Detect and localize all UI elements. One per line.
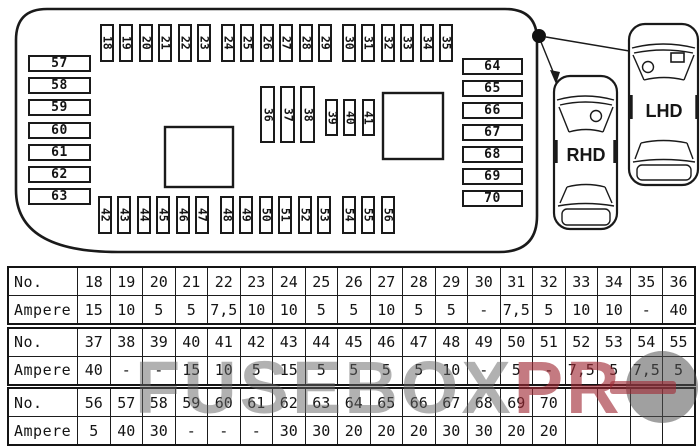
ampere-cell: 5: [663, 356, 696, 385]
fuse-no-cell: 20: [143, 267, 176, 296]
fuse-number-label: 56: [382, 208, 394, 222]
fuse-no-cell: [565, 388, 598, 417]
fuse-number-label: 27: [280, 36, 292, 50]
fuse-no-cell: 50: [500, 328, 533, 357]
fuse-number-label: 19: [121, 36, 133, 50]
ampere-cell: -: [468, 356, 501, 385]
ampere-table-section-1: No.1819202122232425262728293031323334353…: [7, 266, 696, 325]
fuse-no-cell: 33: [565, 267, 598, 296]
fuse-no-cell: 65: [370, 388, 403, 417]
fuse-35: 35: [439, 24, 453, 62]
fuse-no-cell: 24: [273, 267, 306, 296]
fuse-number-label: 42: [99, 208, 111, 222]
fuse-number-label: 58: [51, 79, 68, 92]
fuse-number-label: 18: [101, 36, 113, 50]
fuse-51: 51: [278, 196, 292, 234]
ampere-cell: [663, 417, 696, 446]
fuse-number-label: 26: [261, 36, 273, 50]
ampere-cell: -: [533, 356, 566, 385]
fuse-no-cell: 41: [208, 328, 241, 357]
fuse-no-row-header: No.: [8, 328, 78, 357]
fuse-number-label: 32: [382, 36, 394, 50]
fuse-62: 62: [28, 166, 91, 183]
fuse-no-cell: 60: [208, 388, 241, 417]
ampere-cell: 10: [435, 356, 468, 385]
ampere-cell: -: [175, 417, 208, 446]
fuse-number-label: 68: [484, 148, 501, 161]
fuse-68: 68: [462, 146, 523, 163]
fuse-no-cell: 32: [533, 267, 566, 296]
fuse-66: 66: [462, 102, 523, 119]
ampere-cell: 10: [273, 296, 306, 325]
fuse-25: 25: [240, 24, 254, 62]
fuse-32: 32: [381, 24, 395, 62]
fuse-number-label: 61: [51, 146, 68, 159]
fuse-no-cell: 62: [273, 388, 306, 417]
ampere-cell: 5: [435, 296, 468, 325]
fuse-no-cell: 66: [403, 388, 436, 417]
fuse-number-label: 34: [421, 36, 433, 50]
fuse-no-cell: 45: [338, 328, 371, 357]
fuse-number-label: 40: [344, 111, 356, 125]
fuse-no-row: No.565758596061626364656667686970: [8, 388, 695, 417]
ampere-cell: 30: [273, 417, 306, 446]
ampere-cell: 30: [435, 417, 468, 446]
fuse-no-cell: 63: [305, 388, 338, 417]
ampere-cell: 5: [403, 356, 436, 385]
ampere-cell: 10: [370, 296, 403, 325]
fuse-number-label: 45: [157, 208, 169, 222]
fuse-no-cell: 49: [468, 328, 501, 357]
fuse-number-label: 31: [363, 36, 375, 50]
fuse-number-label: 47: [196, 208, 208, 222]
ampere-cell: [565, 417, 598, 446]
ampere-cell: 20: [500, 417, 533, 446]
fuse-no-cell: [598, 388, 631, 417]
fuse-69: 69: [462, 168, 523, 185]
fuse-no-cell: 38: [110, 328, 143, 357]
fuse-number-label: 30: [343, 36, 355, 50]
fuse-67: 67: [462, 124, 523, 141]
ampere-cell: -: [143, 356, 176, 385]
fuse-no-cell: 46: [370, 328, 403, 357]
fuse-18: 18: [100, 24, 114, 62]
fuse-23: 23: [197, 24, 211, 62]
fuse-number-label: 59: [51, 101, 68, 114]
fuse-number-label: 63: [51, 190, 68, 203]
fuse-no-cell: 43: [273, 328, 306, 357]
fuse-no-cell: 19: [110, 267, 143, 296]
fuse-number-label: 39: [326, 111, 338, 125]
fuse-no-cell: [630, 388, 663, 417]
fuse-number-label: 48: [221, 208, 233, 222]
ampere-cell: 40: [110, 417, 143, 446]
fuse-no-cell: 54: [630, 328, 663, 357]
ampere-cell: 20: [403, 417, 436, 446]
fuse-number-label: 51: [279, 208, 291, 222]
fuse-no-cell: 29: [435, 267, 468, 296]
fuse-no-cell: 70: [533, 388, 566, 417]
ampere-row-header: Ampere: [8, 296, 78, 325]
fuse-no-cell: 52: [565, 328, 598, 357]
fuse-31: 31: [361, 24, 375, 62]
fuse-number-label: 44: [138, 208, 150, 222]
ampere-row-header: Ampere: [8, 417, 78, 446]
fuse-number-label: 50: [260, 208, 272, 222]
fuse-number-label: 36: [262, 108, 274, 122]
fuse-26: 26: [260, 24, 274, 62]
fuse-19: 19: [119, 24, 133, 62]
ampere-cell: 5: [533, 296, 566, 325]
fuse-no-cell: 21: [175, 267, 208, 296]
fuse-49: 49: [239, 196, 253, 234]
ampere-cell: 10: [208, 356, 241, 385]
fuse-no-row-header: No.: [8, 267, 78, 296]
ampere-cell: [598, 417, 631, 446]
fuse-number-label: 28: [300, 36, 312, 50]
ampere-cell: 5: [500, 356, 533, 385]
ampere-cell: 5: [370, 356, 403, 385]
fuse-no-cell: 34: [598, 267, 631, 296]
fuse-45: 45: [156, 196, 170, 234]
fuse-number-label: 21: [159, 36, 171, 50]
ampere-row: Ampere54030---303020202030302020: [8, 417, 695, 446]
ampere-cell: 5: [240, 356, 273, 385]
fuse-no-row: No.3738394041424344454647484950515253545…: [8, 328, 695, 357]
fuse-55: 55: [361, 196, 375, 234]
ampere-cell: 5: [305, 296, 338, 325]
fuse-no-cell: 68: [468, 388, 501, 417]
fuse-number-label: 62: [51, 168, 68, 181]
fuse-61: 61: [28, 144, 91, 161]
fuse-34: 34: [420, 24, 434, 62]
fuse-65: 65: [462, 80, 523, 97]
ampere-cell: 20: [338, 417, 371, 446]
fuse-30: 30: [342, 24, 356, 62]
fuse-number-label: 23: [198, 36, 210, 50]
ampere-cell: 5: [78, 417, 111, 446]
fuse-number-label: 41: [363, 111, 375, 125]
ampere-cell: 5: [338, 356, 371, 385]
fuse-number-label: 43: [119, 208, 131, 222]
fuse-36: 36: [260, 86, 275, 143]
fuse-number-label: 46: [177, 208, 189, 222]
fuse-22: 22: [178, 24, 192, 62]
fuse-number-label: 70: [484, 192, 501, 205]
fuse-no-cell: 59: [175, 388, 208, 417]
fuse-number-label: 25: [242, 36, 254, 50]
fuse-no-cell: 67: [435, 388, 468, 417]
fuse-63: 63: [28, 188, 91, 205]
ampere-cell: 5: [305, 356, 338, 385]
fuse-46: 46: [176, 196, 190, 234]
fuse-no-row: No.1819202122232425262728293031323334353…: [8, 267, 695, 296]
ampere-cell: 20: [370, 417, 403, 446]
fuse-64: 64: [462, 58, 523, 75]
fuse-number-label: 57: [51, 57, 68, 70]
ampere-table-section-2: No.3738394041424344454647484950515253545…: [7, 327, 696, 386]
ampere-row: Ampere40--1510515555510-5-7,557,55: [8, 356, 695, 385]
fuse-no-cell: 44: [305, 328, 338, 357]
fuse-24: 24: [221, 24, 235, 62]
fuse-no-cell: 37: [78, 328, 111, 357]
fuse-44: 44: [137, 196, 151, 234]
ampere-cell: -: [208, 417, 241, 446]
fuse-no-row-header: No.: [8, 388, 78, 417]
fuse-no-cell: 42: [240, 328, 273, 357]
fuse-number-label: 60: [51, 124, 68, 137]
fuse-52: 52: [298, 196, 312, 234]
fuse-33: 33: [400, 24, 414, 62]
fuse-number-label: 35: [440, 36, 452, 50]
ampere-cell: 7,5: [208, 296, 241, 325]
fuse-42: 42: [98, 196, 112, 234]
ampere-cell: 5: [175, 296, 208, 325]
fuse-no-cell: 18: [78, 267, 111, 296]
ampere-cell: 7,5: [565, 356, 598, 385]
fuse-number-label: 64: [484, 60, 501, 73]
ampere-cell: 5: [598, 356, 631, 385]
ampere-cell: 40: [78, 356, 111, 385]
fuse-no-cell: 23: [240, 267, 273, 296]
fuse-59: 59: [28, 99, 91, 116]
ampere-cell: 5: [338, 296, 371, 325]
ampere-cell: 30: [305, 417, 338, 446]
fuse-layout: 1819202122232425262728293031323334354243…: [0, 0, 700, 260]
fuse-no-cell: 53: [598, 328, 631, 357]
fuse-no-cell: 55: [663, 328, 696, 357]
fuse-50: 50: [259, 196, 273, 234]
fuse-number-label: 24: [222, 36, 234, 50]
fuse-number-label: 49: [241, 208, 253, 222]
fuse-no-cell: 30: [468, 267, 501, 296]
ampere-table-section-3: No.565758596061626364656667686970Ampere5…: [7, 387, 696, 446]
fuse-number-label: 20: [140, 36, 152, 50]
ampere-cell: 10: [110, 296, 143, 325]
fuse-number-label: 22: [179, 36, 191, 50]
fuse-number-label: 65: [484, 82, 501, 95]
fuse-number-label: 29: [319, 36, 331, 50]
fuse-57: 57: [28, 55, 91, 72]
fuse-no-cell: 57: [110, 388, 143, 417]
fuse-no-cell: 39: [143, 328, 176, 357]
fuse-no-cell: 56: [78, 388, 111, 417]
fuse-number-label: 33: [401, 36, 413, 50]
ampere-cell: 15: [273, 356, 306, 385]
fuse-no-cell: 22: [208, 267, 241, 296]
ampere-cell: 10: [240, 296, 273, 325]
fuse-no-cell: 47: [403, 328, 436, 357]
fuse-number-label: 53: [318, 208, 330, 222]
fuse-21: 21: [158, 24, 172, 62]
fuse-no-cell: 25: [305, 267, 338, 296]
ampere-cell: 20: [533, 417, 566, 446]
ampere-cell: 5: [143, 296, 176, 325]
ampere-cell: 7,5: [500, 296, 533, 325]
fuse-no-cell: 51: [533, 328, 566, 357]
fuse-no-cell: 64: [338, 388, 371, 417]
fuse-39: 39: [325, 99, 338, 136]
fuse-number-label: 54: [343, 208, 355, 222]
fuse-box-page: RHD LHD 18192021222324252627282930313233…: [0, 0, 700, 448]
fuse-56: 56: [381, 196, 395, 234]
fuse-no-cell: 26: [338, 267, 371, 296]
fuse-38: 38: [300, 86, 315, 143]
ampere-cell: 5: [403, 296, 436, 325]
fuse-no-cell: 69: [500, 388, 533, 417]
fuse-number-label: 55: [363, 208, 375, 222]
fuse-48: 48: [220, 196, 234, 234]
fuse-53: 53: [317, 196, 331, 234]
fuse-70: 70: [462, 190, 523, 207]
fuse-no-cell: 61: [240, 388, 273, 417]
fuse-40: 40: [343, 99, 356, 136]
fuse-number-label: 38: [302, 108, 314, 122]
fuse-no-cell: [663, 388, 696, 417]
fuse-no-cell: 28: [403, 267, 436, 296]
ampere-cell: 30: [143, 417, 176, 446]
ampere-cell: 15: [175, 356, 208, 385]
fuse-number-label: 66: [484, 104, 501, 117]
fuse-43: 43: [117, 196, 131, 234]
ampere-cell: 30: [468, 417, 501, 446]
ampere-cell: [630, 417, 663, 446]
fuse-20: 20: [139, 24, 153, 62]
fuse-no-cell: 58: [143, 388, 176, 417]
ampere-cell: 10: [565, 296, 598, 325]
fuse-number-label: 67: [484, 126, 501, 139]
fuse-number-label: 52: [299, 208, 311, 222]
ampere-cell: -: [468, 296, 501, 325]
ampere-row: Ampere1510557,51010551055-7,551010-40: [8, 296, 695, 325]
fuse-54: 54: [342, 196, 356, 234]
ampere-row-header: Ampere: [8, 356, 78, 385]
fuse-41: 41: [362, 99, 375, 136]
fuse-29: 29: [318, 24, 332, 62]
fuse-no-cell: 35: [630, 267, 663, 296]
fuse-47: 47: [195, 196, 209, 234]
fuse-37: 37: [280, 86, 295, 143]
fuse-number-label: 37: [282, 108, 294, 122]
fuse-58: 58: [28, 77, 91, 94]
fuse-no-cell: 48: [435, 328, 468, 357]
fuse-no-cell: 31: [500, 267, 533, 296]
fuse-28: 28: [299, 24, 313, 62]
fuse-60: 60: [28, 122, 91, 139]
ampere-cell: 7,5: [630, 356, 663, 385]
ampere-cell: 40: [663, 296, 696, 325]
ampere-cell: -: [630, 296, 663, 325]
fuse-no-cell: 36: [663, 267, 696, 296]
fuse-no-cell: 40: [175, 328, 208, 357]
ampere-cell: -: [240, 417, 273, 446]
ampere-cell: 15: [78, 296, 111, 325]
fuse-number-label: 69: [484, 170, 501, 183]
ampere-cell: -: [110, 356, 143, 385]
ampere-cell: 10: [598, 296, 631, 325]
fuse-no-cell: 27: [370, 267, 403, 296]
fuse-27: 27: [279, 24, 293, 62]
